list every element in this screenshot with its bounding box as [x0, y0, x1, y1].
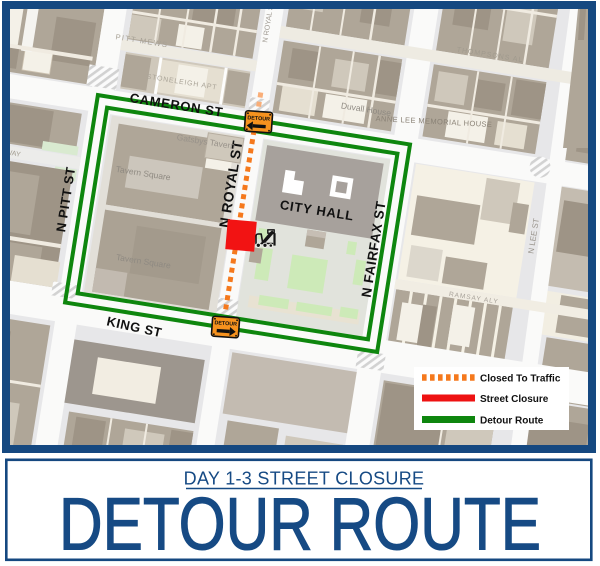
- svg-text:Street Closure: Street Closure: [480, 394, 549, 405]
- svg-text:Closed To Traffic: Closed To Traffic: [480, 374, 561, 385]
- svg-text:Detour Route: Detour Route: [480, 416, 544, 427]
- svg-text:DETOUR ROUTE: DETOUR ROUTE: [59, 483, 541, 566]
